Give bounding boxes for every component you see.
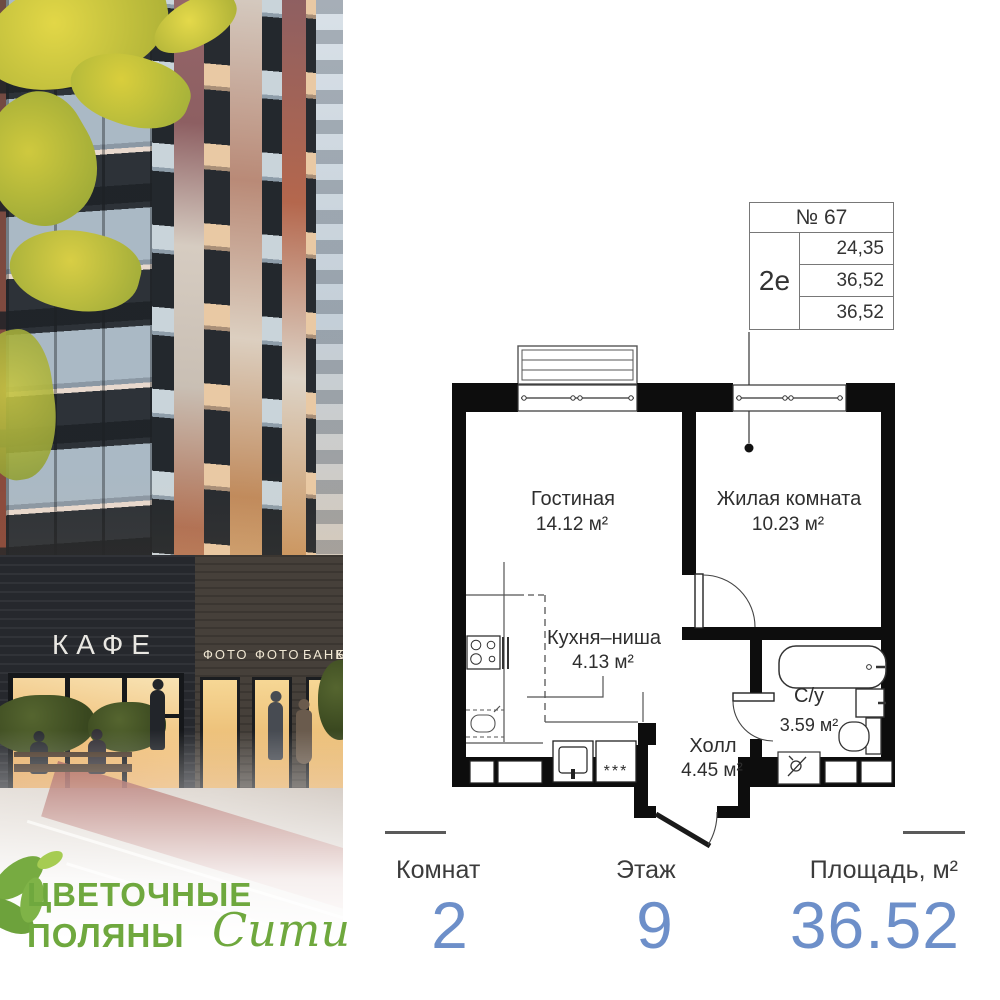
room-name-hall: Холл [689, 735, 736, 757]
bathroom-door [733, 693, 774, 741]
stats-divider-right [903, 831, 965, 834]
rooms-value: 2 [400, 892, 500, 958]
brand-name-script: Сити [212, 903, 350, 957]
area-label: Площадь, м² [760, 856, 958, 885]
bathtub [779, 646, 886, 688]
stars-box: *** [596, 741, 636, 782]
cafe-sign: КАФЕ [52, 629, 158, 661]
shop-sign-foto: ФОТО [255, 647, 300, 662]
room-name-bathroom: С/у [794, 685, 824, 707]
room-area-hall: 4.45 м² [681, 760, 743, 781]
area-value: 36.52 [760, 892, 960, 958]
rooms-label: Комнат [396, 856, 480, 885]
stats-divider-left [385, 831, 446, 834]
room-area-kitchen: 4.13 м² [572, 652, 634, 673]
area-row: 36,52 [800, 265, 893, 297]
washing-machine [553, 741, 593, 782]
stars-marker: *** [604, 763, 629, 780]
room-name-kitchen: Кухня–ниша [547, 627, 662, 649]
apartment-type: 2е [750, 233, 799, 329]
area-row: 24,35 [800, 233, 893, 265]
floor-value: 9 [605, 892, 705, 958]
balcony [518, 346, 637, 384]
floor-plan: *** Гостиная 14.12 м² Жилая комната 10.2… [440, 330, 910, 860]
stove [467, 636, 508, 669]
window-right [733, 385, 846, 411]
apartment-info-box: № 67 2е 24,35 36,52 36,52 [749, 202, 894, 330]
room-name-living: Гостиная [531, 488, 615, 510]
room-area-living: 14.12 м² [536, 514, 608, 535]
area-row: 36,52 [800, 297, 893, 329]
apartment-number: № 67 [750, 203, 893, 233]
room-name-bedroom: Жилая комната [717, 488, 862, 510]
window-left [518, 385, 637, 411]
entrance-door [656, 812, 717, 846]
brand-name-line2: ПОЛЯНЫ [27, 917, 185, 955]
listing-card: КАФЕ ФОТО ФОТО БАНК БАНК [0, 0, 1000, 1000]
floor-label: Этаж [616, 856, 676, 885]
walls [452, 383, 895, 818]
shop-sign-foto: ФОТО [203, 647, 248, 662]
room-area-bedroom: 10.23 м² [752, 514, 824, 535]
leader-dot [745, 444, 754, 453]
towel-dryer [778, 752, 820, 784]
bathroom-sink [856, 689, 886, 717]
room-area-bathroom: 3.59 м² [780, 715, 838, 735]
bedroom-door [695, 574, 755, 628]
toilet [839, 718, 881, 754]
